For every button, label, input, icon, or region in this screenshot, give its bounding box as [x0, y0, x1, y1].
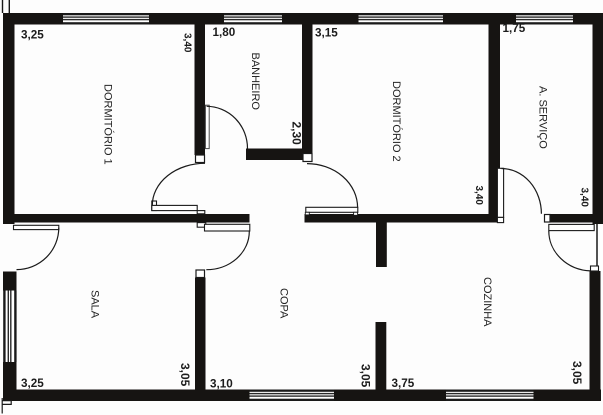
svg-text:2,30: 2,30 — [290, 122, 304, 146]
svg-text:BANHEIRO: BANHEIRO — [249, 53, 261, 111]
svg-text:DORMITÓRIO 1: DORMITÓRIO 1 — [102, 84, 115, 165]
svg-text:3,05: 3,05 — [178, 363, 192, 387]
svg-text:3,05: 3,05 — [570, 361, 584, 385]
svg-text:3,05: 3,05 — [359, 364, 373, 388]
svg-text:SALA: SALA — [89, 290, 101, 319]
svg-text:3,40: 3,40 — [473, 186, 484, 206]
svg-text:3,40: 3,40 — [579, 188, 590, 208]
svg-text:COZINHA: COZINHA — [481, 277, 493, 327]
svg-text:3,10: 3,10 — [210, 377, 233, 390]
svg-text:3,75: 3,75 — [392, 377, 415, 390]
svg-text:3,40: 3,40 — [182, 33, 193, 53]
svg-text:3,15: 3,15 — [315, 27, 338, 40]
svg-text:A. SERVIÇO: A. SERVIÇO — [537, 86, 549, 149]
svg-text:3,25: 3,25 — [21, 29, 44, 42]
svg-text:COPA: COPA — [278, 288, 290, 319]
svg-text:3,25: 3,25 — [21, 377, 44, 390]
svg-text:DORMITÓRIO 2: DORMITÓRIO 2 — [390, 81, 403, 162]
svg-text:1,75: 1,75 — [503, 22, 526, 35]
svg-text:1,80: 1,80 — [213, 26, 236, 39]
